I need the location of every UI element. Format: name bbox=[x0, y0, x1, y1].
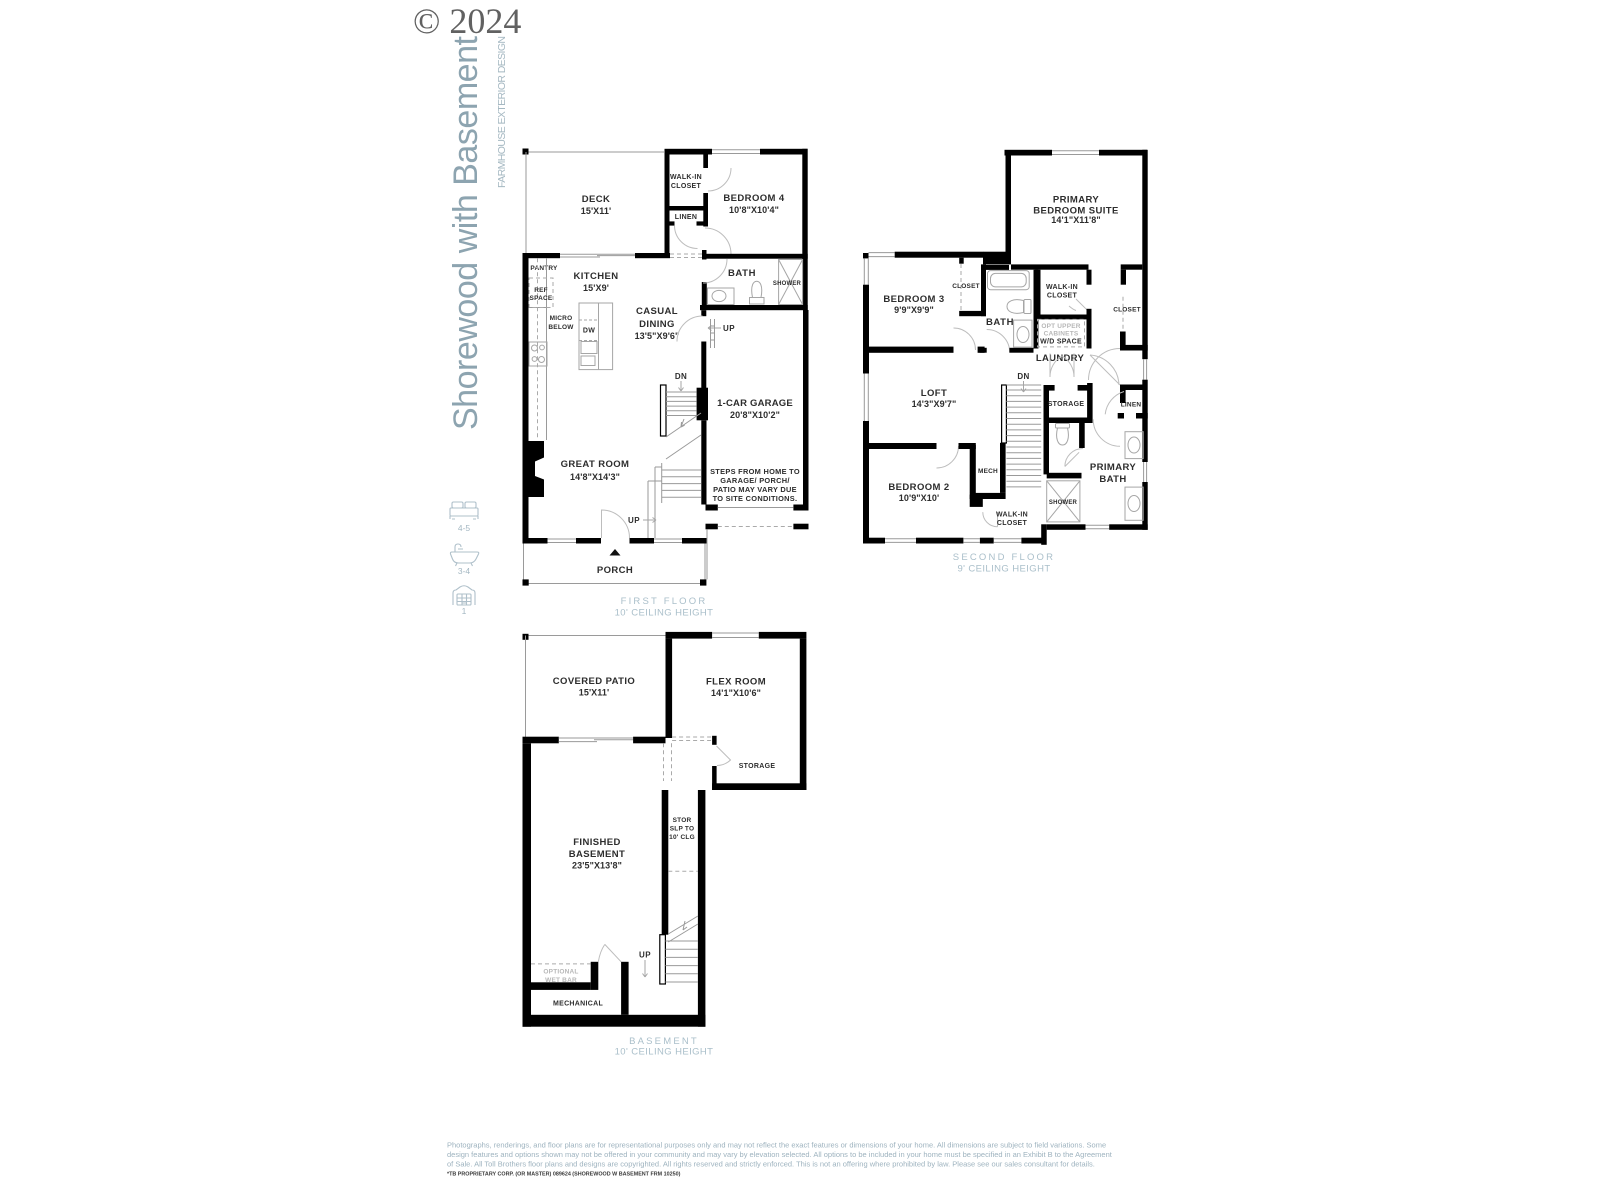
svg-text:of Sale. All Toll Brothers flo: of Sale. All Toll Brothers floor plans a… bbox=[447, 1159, 1095, 1168]
svg-text:PANTRY: PANTRY bbox=[530, 265, 558, 272]
svg-text:14'3"X9'7": 14'3"X9'7" bbox=[912, 399, 957, 409]
svg-text:KITCHEN: KITCHEN bbox=[573, 271, 618, 282]
svg-text:WALK-IN: WALK-IN bbox=[670, 174, 702, 181]
svg-text:UP: UP bbox=[628, 516, 640, 525]
svg-text:LOFT: LOFT bbox=[921, 388, 947, 399]
svg-text:10' CLG: 10' CLG bbox=[669, 834, 695, 841]
svg-text:FARMHOUSE EXTERIOR DESIGN: FARMHOUSE EXTERIOR DESIGN bbox=[496, 36, 508, 188]
svg-text:BEDROOM 2: BEDROOM 2 bbox=[888, 482, 949, 493]
svg-text:MECH: MECH bbox=[978, 468, 998, 475]
svg-text:STORAGE: STORAGE bbox=[739, 763, 776, 770]
svg-text:BEDROOM 3: BEDROOM 3 bbox=[883, 294, 944, 305]
svg-text:LINEN: LINEN bbox=[1121, 402, 1142, 409]
svg-text:4-5: 4-5 bbox=[458, 523, 471, 533]
svg-text:CLOSET: CLOSET bbox=[997, 520, 1028, 527]
svg-text:SHOWER: SHOWER bbox=[1049, 500, 1078, 506]
svg-text:STEPS FROM HOME TO: STEPS FROM HOME TO bbox=[710, 467, 800, 476]
svg-text:W/D SPACE: W/D SPACE bbox=[1040, 339, 1082, 346]
svg-text:BASEMENT: BASEMENT bbox=[629, 1036, 699, 1047]
svg-text:UP: UP bbox=[723, 324, 735, 333]
svg-text:COVERED PATIO: COVERED PATIO bbox=[553, 676, 635, 687]
svg-text:Photographs, renderings, and f: Photographs, renderings, and floor plans… bbox=[447, 1141, 1106, 1150]
svg-text:20'8"X10'2": 20'8"X10'2" bbox=[730, 410, 780, 420]
svg-text:BASEMENT: BASEMENT bbox=[569, 849, 626, 860]
svg-text:FINISHED: FINISHED bbox=[573, 837, 621, 848]
svg-text:MECHANICAL: MECHANICAL bbox=[553, 1001, 603, 1008]
svg-text:LAUNDRY: LAUNDRY bbox=[1036, 353, 1085, 364]
svg-text:CLOSET: CLOSET bbox=[671, 183, 702, 190]
svg-text:CABINETS: CABINETS bbox=[1044, 331, 1079, 338]
svg-text:15'X11': 15'X11' bbox=[579, 688, 610, 698]
svg-text:STORAGE: STORAGE bbox=[1048, 401, 1085, 408]
svg-text:Shorewood with Basement: Shorewood with Basement bbox=[447, 35, 485, 430]
svg-text:10'9"X10': 10'9"X10' bbox=[899, 493, 939, 503]
svg-text:SPACE: SPACE bbox=[530, 295, 553, 302]
svg-text:SHOWER: SHOWER bbox=[773, 281, 802, 287]
svg-text:CLOSET: CLOSET bbox=[952, 283, 980, 290]
svg-text:14'8"X14'3": 14'8"X14'3" bbox=[570, 472, 620, 482]
svg-text:MICRO: MICRO bbox=[550, 315, 573, 322]
svg-text:BELOW: BELOW bbox=[548, 324, 574, 331]
svg-text:9'9"X9'9": 9'9"X9'9" bbox=[894, 305, 934, 315]
svg-text:BEDROOM 4: BEDROOM 4 bbox=[723, 193, 784, 204]
svg-text:SLP TO: SLP TO bbox=[670, 826, 694, 833]
svg-text:REF: REF bbox=[534, 287, 548, 294]
svg-text:WALK-IN: WALK-IN bbox=[996, 512, 1028, 519]
svg-text:DINING: DINING bbox=[639, 319, 675, 330]
svg-text:FIRST FLOOR: FIRST FLOOR bbox=[621, 596, 708, 607]
svg-text:WALK-IN: WALK-IN bbox=[1046, 284, 1078, 291]
svg-text:SECOND FLOOR: SECOND FLOOR bbox=[953, 552, 1055, 563]
svg-text:DN: DN bbox=[675, 372, 687, 381]
svg-text:DW: DW bbox=[583, 328, 595, 335]
svg-text:BATH: BATH bbox=[728, 268, 756, 279]
svg-text:design features and options sh: design features and options shown may no… bbox=[447, 1150, 1113, 1159]
svg-text:13'5"X9'6": 13'5"X9'6" bbox=[635, 331, 680, 341]
svg-text:TO SITE CONDITIONS.: TO SITE CONDITIONS. bbox=[713, 494, 798, 503]
svg-text:14'1"X10'6": 14'1"X10'6" bbox=[711, 688, 761, 698]
svg-text:3-4: 3-4 bbox=[458, 566, 471, 576]
svg-text:BATH: BATH bbox=[986, 317, 1014, 328]
svg-text:CLOSET: CLOSET bbox=[1047, 293, 1078, 300]
svg-text:FLEX ROOM: FLEX ROOM bbox=[706, 677, 766, 688]
svg-text:DECK: DECK bbox=[582, 194, 611, 205]
svg-text:LINEN: LINEN bbox=[675, 214, 698, 221]
svg-text:PRIMARY: PRIMARY bbox=[1090, 462, 1137, 473]
svg-text:1-CAR GARAGE: 1-CAR GARAGE bbox=[717, 398, 793, 409]
svg-text:PORCH: PORCH bbox=[597, 565, 633, 576]
svg-text:GREAT ROOM: GREAT ROOM bbox=[561, 459, 630, 470]
svg-text:10' CEILING HEIGHT: 10' CEILING HEIGHT bbox=[615, 1047, 714, 1058]
svg-text:9' CEILING HEIGHT: 9' CEILING HEIGHT bbox=[957, 564, 1050, 575]
svg-text:PATIO MAY VARY DUE: PATIO MAY VARY DUE bbox=[713, 485, 797, 494]
svg-text:UP: UP bbox=[639, 951, 651, 960]
svg-text:OPT UPPER: OPT UPPER bbox=[1041, 323, 1080, 330]
svg-text:OPTIONAL: OPTIONAL bbox=[543, 969, 578, 976]
svg-text:DN: DN bbox=[1017, 372, 1029, 381]
svg-text:15'X9': 15'X9' bbox=[583, 283, 609, 293]
svg-text:STOR: STOR bbox=[673, 817, 692, 824]
svg-text:CASUAL: CASUAL bbox=[636, 306, 678, 317]
svg-text:BATH: BATH bbox=[1099, 474, 1126, 485]
svg-text:10'8"X10'4": 10'8"X10'4" bbox=[729, 205, 779, 215]
svg-text:*TB PROPRIETARY CORP. (OR MAST: *TB PROPRIETARY CORP. (OR MASTER) 089624… bbox=[447, 1171, 681, 1177]
svg-text:CLOSET: CLOSET bbox=[1113, 307, 1141, 314]
svg-text:23'5"X13'8": 23'5"X13'8" bbox=[572, 861, 622, 871]
svg-text:15'X11': 15'X11' bbox=[581, 206, 612, 216]
svg-text:10' CEILING HEIGHT: 10' CEILING HEIGHT bbox=[615, 608, 714, 619]
svg-text:14'1"X11'8": 14'1"X11'8" bbox=[1051, 215, 1100, 225]
svg-text:1: 1 bbox=[462, 606, 467, 616]
svg-text:PRIMARY: PRIMARY bbox=[1053, 195, 1100, 206]
svg-text:© 2024: © 2024 bbox=[413, 1, 521, 41]
svg-text:GARAGE/ PORCH/: GARAGE/ PORCH/ bbox=[720, 476, 790, 485]
